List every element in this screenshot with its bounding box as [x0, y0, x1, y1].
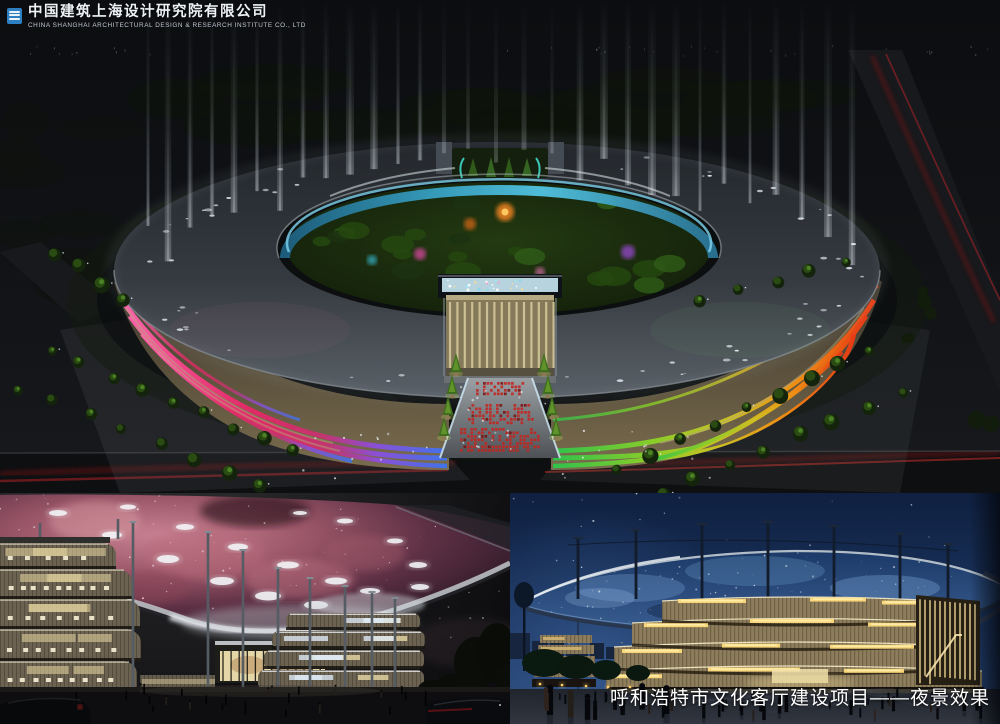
- nebula-canopy-graphic: [0, 493, 510, 724]
- panel-aerial-night-view: 中国建筑上海设计研究院有限公司 CHINA SHANGHAI ARCHITECT…: [0, 0, 1000, 493]
- panel-nebula-canopy-view: [0, 493, 510, 724]
- presentation-board: 中国建筑上海设计研究院有限公司 CHINA SHANGHAI ARCHITECT…: [0, 0, 1000, 724]
- company-logo-icon: [7, 8, 22, 24]
- company-logo-text: 中国建筑上海设计研究院有限公司 CHINA SHANGHAI ARCHITECT…: [28, 5, 306, 29]
- project-caption: 呼和浩特市文化客厅建设项目——夜景效果: [610, 683, 990, 710]
- aerial-rendering-graphic: [0, 0, 1000, 493]
- main-curved-building: [606, 595, 984, 695]
- company-name-en: CHINA SHANGHAI ARCHITECTURAL DESIGN & RE…: [28, 22, 306, 29]
- company-logo: 中国建筑上海设计研究院有限公司 CHINA SHANGHAI ARCHITECT…: [7, 5, 306, 29]
- panel-star-canopy-view: 呼和浩特市文化客厅建设项目——夜景效果: [510, 493, 1000, 724]
- car-silhouette-right: [426, 697, 510, 724]
- company-name-cn: 中国建筑上海设计研究院有限公司: [28, 5, 306, 20]
